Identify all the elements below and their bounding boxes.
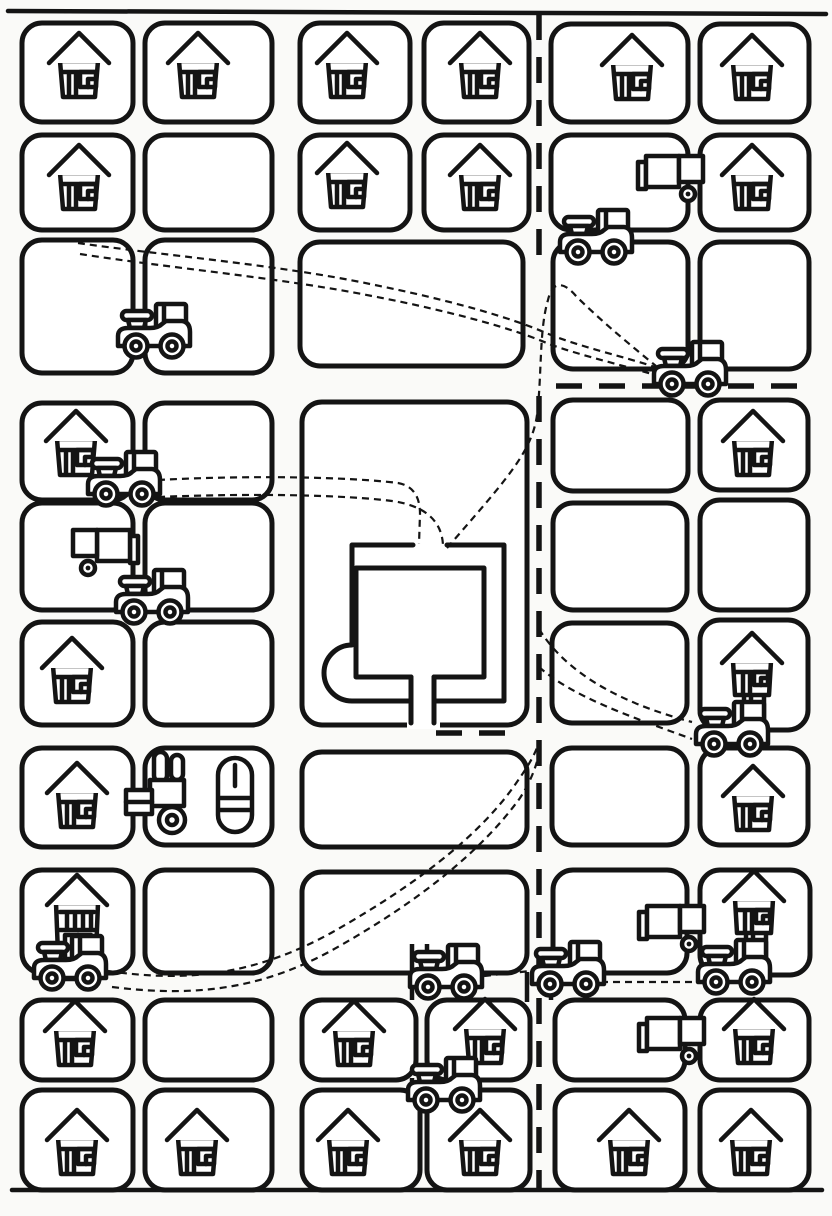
city-block-29 (552, 623, 687, 723)
tractor-glyph (34, 936, 106, 990)
tractor-7 (34, 936, 106, 990)
capsule-glyph (218, 758, 252, 832)
city-block-18 (302, 402, 527, 725)
tractor-glyph (116, 570, 188, 624)
city-block-25 (553, 503, 687, 610)
capsule-17 (218, 758, 252, 832)
tractor-glyph (410, 945, 482, 999)
city-block-37 (145, 870, 272, 973)
city-block-33 (302, 752, 527, 847)
city-block-26 (700, 500, 808, 610)
tractor-9 (532, 942, 604, 996)
top-border (8, 11, 826, 14)
city-block-15 (300, 242, 523, 366)
city-block-34 (552, 748, 687, 845)
tractor-5 (116, 570, 188, 624)
city-block-21 (553, 400, 688, 491)
tractor-10 (698, 940, 770, 994)
tractor-glyph (698, 940, 770, 994)
city-block-20 (145, 403, 272, 500)
tractor-8 (410, 945, 482, 999)
tractor-glyph (532, 942, 604, 996)
city-block-28 (145, 622, 272, 725)
city-block-42 (145, 1000, 272, 1080)
coloring-map-canvas (0, 0, 832, 1216)
city-block-8 (145, 135, 272, 230)
coloring-map-page (0, 0, 832, 1216)
